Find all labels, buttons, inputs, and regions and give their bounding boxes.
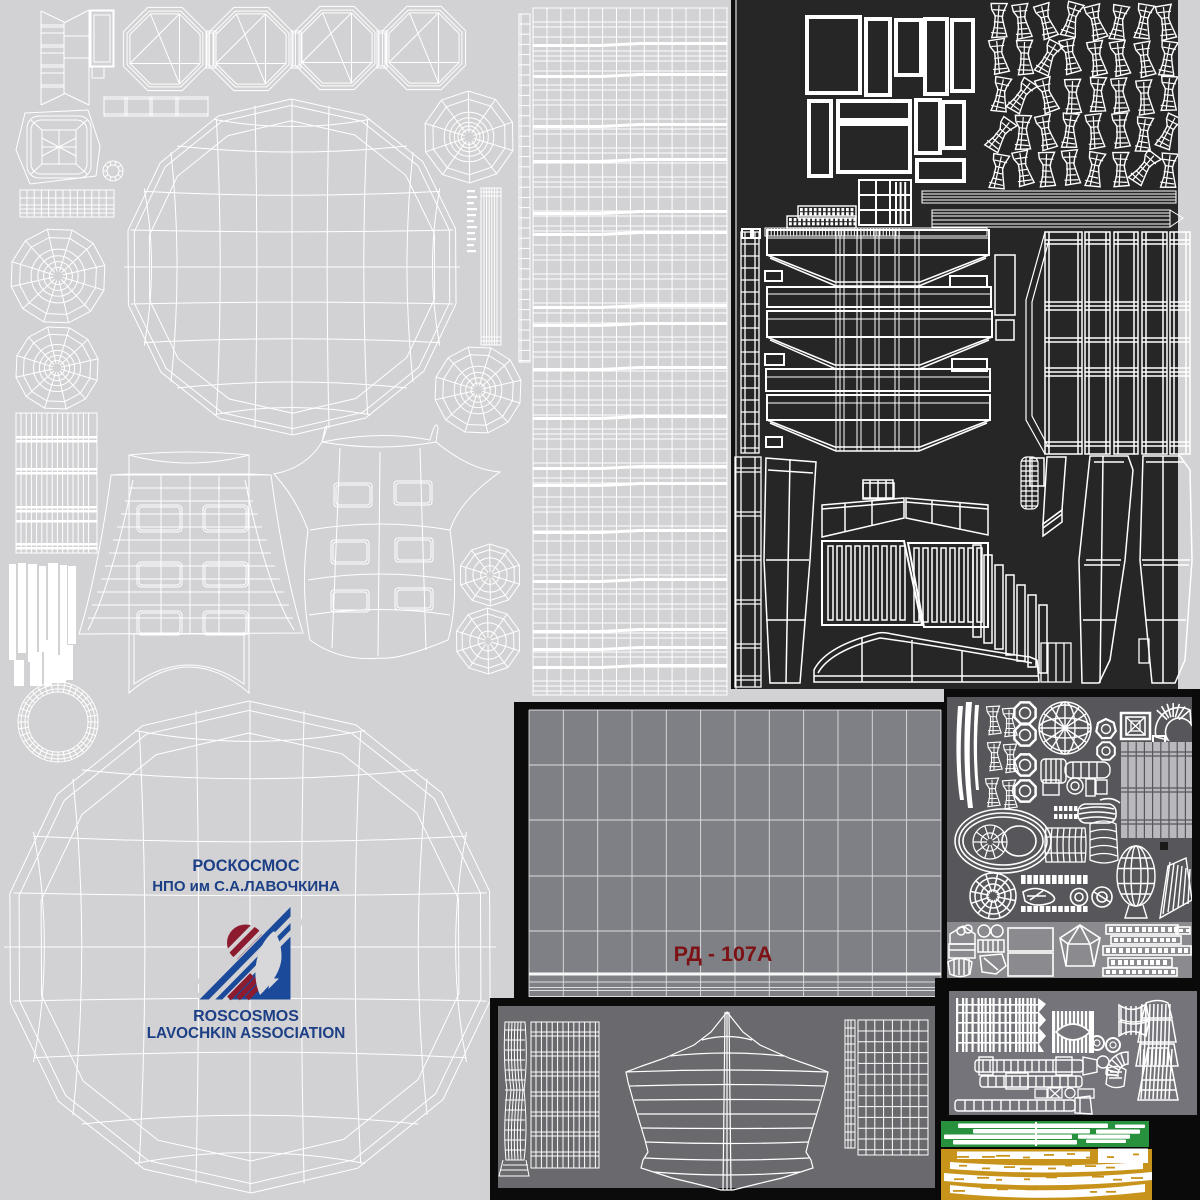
svg-text:ROSCOSMOS: ROSCOSMOS — [193, 1008, 299, 1025]
svg-text:РОСКОСМОС: РОСКОСМОС — [192, 857, 299, 875]
svg-text:LAVOCHKIN ASSOCIATION: LAVOCHKIN ASSOCIATION — [147, 1025, 346, 1042]
svg-text:РД - 107А: РД - 107А — [674, 942, 773, 966]
svg-text:НПО им С.А.ЛАВОЧКИНА: НПО им С.А.ЛАВОЧКИНА — [152, 878, 340, 895]
